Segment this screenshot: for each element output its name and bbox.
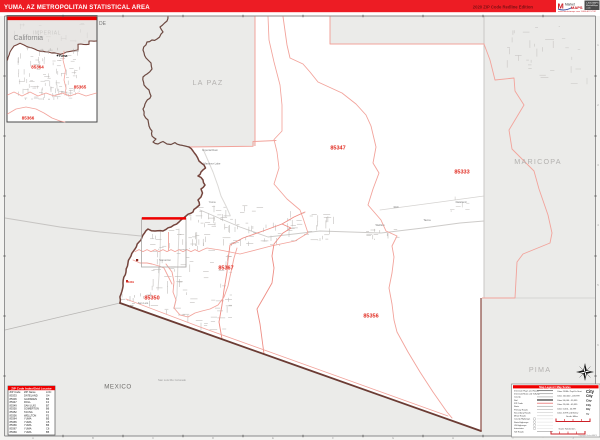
svg-text:City: City	[586, 403, 591, 407]
svg-text:Interstates: Interstates	[514, 427, 524, 430]
svg-text:.com: .com	[586, 8, 591, 10]
svg-text:Wellton: Wellton	[376, 223, 385, 227]
svg-text:Imperial Dam: Imperial Dam	[202, 148, 219, 152]
svg-text:Roll: Roll	[394, 205, 399, 209]
svg-text:Cities 5,000 - 24,999: Cities 5,000 - 24,999	[557, 407, 577, 410]
svg-text:City: City	[586, 389, 595, 394]
svg-text:Dateland: Dateland	[456, 200, 467, 204]
svg-text:Yuma: Yuma	[209, 200, 216, 204]
svg-text:Copyright MarketMAPS: Copyright MarketMAPS	[578, 434, 598, 437]
svg-text:85333: 85333	[454, 170, 469, 176]
svg-text:Interstate Hwys and Roads: Interstate Hwys and Roads	[514, 389, 539, 392]
svg-text:US Highways: US Highways	[514, 425, 526, 427]
svg-text:85350: 85350	[144, 296, 159, 302]
svg-text:Interstate/State and Tollway: Interstate/State and Tollway	[514, 393, 540, 396]
svg-text:85349: 85349	[126, 280, 134, 284]
svg-text:B5: B5	[46, 430, 50, 434]
svg-text:A: A	[32, 436, 34, 440]
svg-text:85364: 85364	[31, 65, 44, 70]
svg-text:City: City	[586, 408, 591, 411]
svg-text:Rail: Rail	[514, 400, 518, 402]
svg-text:G: G	[392, 436, 394, 440]
svg-text:2020 ZIP Code Redline Edition: 2020 ZIP Code Redline Edition	[473, 4, 534, 9]
svg-text:YUMA, AZ METROPOLITAN STATISTI: YUMA, AZ METROPOLITAN STATISTICAL AREA	[4, 4, 150, 11]
svg-text:85369: 85369	[10, 430, 18, 434]
svg-text:Tacna: Tacna	[423, 218, 431, 222]
svg-text:Cities 4,999 and Below: Cities 4,999 and Below	[557, 412, 579, 415]
svg-text:85356: 85356	[363, 314, 378, 320]
svg-text:MAPS: MAPS	[571, 5, 583, 10]
svg-text:H: H	[452, 436, 454, 440]
svg-text:YUMA: YUMA	[24, 430, 32, 434]
svg-text:San Luis: San Luis	[138, 301, 149, 305]
svg-text:Scale: Miles: Scale: Miles	[566, 416, 579, 418]
svg-text:ZIP Code Index/Grid Locator: ZIP Code Index/Grid Locator	[11, 386, 52, 390]
svg-text:Minor Roads: Minor Roads	[514, 415, 526, 418]
svg-text:85367: 85367	[218, 266, 233, 272]
svg-text:Primary Roads: Primary Roads	[514, 408, 528, 411]
svg-text:California: California	[14, 35, 44, 42]
svg-text:E: E	[272, 436, 274, 440]
svg-text:County Highways: County Highways	[514, 418, 530, 421]
svg-text:PIMA: PIMA	[529, 365, 551, 374]
svg-text:MARICOPA: MARICOPA	[514, 157, 561, 166]
svg-text:LA PAZ: LA PAZ	[192, 78, 223, 87]
svg-text:State: State	[514, 405, 520, 408]
svg-text:DE: DE	[99, 21, 107, 27]
svg-text:ZIP Code: ZIP Code	[514, 403, 524, 405]
svg-text:Cities 25,000 - 49,999: Cities 25,000 - 49,999	[557, 403, 578, 406]
svg-text:85366: 85366	[22, 116, 35, 121]
svg-text:B: B	[92, 436, 94, 440]
svg-text:85347: 85347	[330, 146, 345, 152]
svg-text:Cities 250M+ Pop/Co Seat: Cities 250M+ Pop/Co Seat	[557, 390, 582, 393]
svg-text:Secondary Roads: Secondary Roads	[514, 411, 531, 414]
svg-text:Somerton: Somerton	[159, 258, 171, 262]
svg-text:San Luis Rio Colorado: San Luis Rio Colorado	[158, 378, 186, 382]
svg-text:Martinez Lake: Martinez Lake	[204, 162, 221, 166]
svg-text:Toll Roads: Toll Roads	[514, 431, 524, 433]
svg-text:C: C	[152, 436, 154, 440]
svg-text:D: D	[212, 436, 214, 440]
svg-text:www.marketmaps.com 1-800-627-7: www.marketmaps.com 1-800-627-7237	[558, 10, 597, 13]
svg-text:Cities 50,000 - 99,999: Cities 50,000 - 99,999	[557, 399, 578, 402]
svg-text:Scale: Kilometers: Scale: Kilometers	[558, 427, 576, 430]
svg-text:85365: 85365	[74, 85, 87, 90]
svg-text:Map Legend / Map Scales: Map Legend / Map Scales	[539, 385, 571, 389]
svg-text:State Highways: State Highways	[514, 421, 528, 424]
svg-text:MEXICO: MEXICO	[104, 384, 131, 391]
svg-text:Yuma: Yuma	[59, 54, 68, 58]
svg-text:City: City	[586, 399, 592, 403]
svg-text:Cities 100,000 - 249,999: Cities 100,000 - 249,999	[557, 395, 580, 398]
svg-text:County: County	[514, 396, 522, 399]
